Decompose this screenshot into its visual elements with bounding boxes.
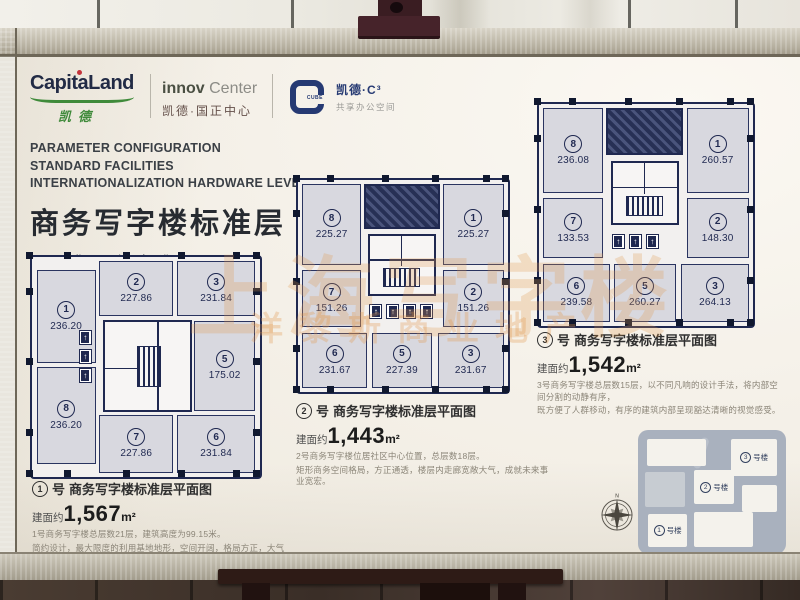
column-marker — [123, 470, 130, 477]
cube-c-icon: CUBE — [290, 80, 324, 114]
hatched-block — [606, 108, 683, 155]
column-marker — [747, 98, 754, 105]
column-marker — [432, 386, 439, 393]
column-marker — [747, 135, 754, 142]
column-marker — [534, 206, 541, 213]
frame-left — [0, 28, 17, 578]
compass-icon: N — [594, 492, 640, 538]
sitemap-building-1: 1号楼 — [648, 514, 686, 546]
column-marker — [432, 175, 439, 182]
plan2-unit-6: 6231.67 — [302, 333, 367, 388]
floor-plan-3: 8236.08 1260.57 7133.53 2148.30 6239.58 … — [537, 102, 755, 328]
plan2-unit-8: 8225.27 — [302, 184, 361, 265]
cube-chinese: 凯德·C³ — [336, 81, 396, 98]
column-marker — [502, 386, 509, 393]
plan3-unit-2: 2148.30 — [687, 198, 749, 258]
plan2-caption: 2 号 商务写字楼标准层平面图 建面约1,443m² 2号商务写字楼位居社区中心… — [296, 401, 556, 488]
plan3-unit-7: 7133.53 — [543, 198, 603, 258]
plan3-unit-1: 1260.57 — [687, 108, 749, 192]
plan3-unit-6: 6239.58 — [543, 264, 609, 322]
easel-clamp-bar — [358, 16, 440, 39]
elevator-icon — [79, 349, 92, 364]
column-marker — [483, 386, 490, 393]
column-marker — [625, 319, 632, 326]
elevator-icon — [612, 234, 625, 249]
column-marker — [502, 278, 509, 285]
column-marker — [502, 175, 509, 182]
column-marker — [502, 210, 509, 217]
floor-plan-2: 8225.27 1225.27 7151.26 2151.26 6231.67 … — [296, 178, 510, 394]
plan2-desc-2: 矩形商务空间格局，方正通透，楼层内走廊宽敞大气，成就未来事业宽宏。 — [296, 465, 556, 488]
elevator-bank — [612, 234, 659, 249]
column-marker — [534, 277, 541, 284]
easel-tray — [218, 569, 563, 584]
column-marker — [253, 429, 260, 436]
column-marker — [676, 98, 683, 105]
plan3-desc-2: 既方便了人群移动，有序的建筑内部呈现豁达清晰的视觉感受。 — [537, 405, 785, 417]
cube-word: CUBE — [307, 95, 323, 101]
heading-en-3: INTERNATIONALIZATION HARDWARE LEVEL — [30, 175, 308, 193]
column-marker — [253, 252, 260, 259]
sitemap-building — [694, 512, 753, 547]
cube-subtitle: 共享办公空间 — [336, 101, 396, 113]
heading-en-1: PARAMETER CONFIGURATION — [30, 140, 308, 158]
plan3-unit-5: 5260.27 — [614, 264, 676, 322]
center-wordmark: Center — [205, 80, 257, 97]
column-marker — [534, 319, 541, 326]
sitemap-block — [645, 472, 685, 507]
elevator-icon — [420, 304, 433, 319]
plan3-caption: 3 号 商务写字楼标准层平面图 建面约1,542m² 3号商务写字楼总层数15层… — [537, 330, 785, 417]
floor-plan-1: 1236.20 2227.86 3231.84 5175.02 6231.84 … — [30, 255, 262, 479]
capitaland-chinese: 凯德 — [58, 106, 142, 125]
plan1-area: 建面约1,567m² — [32, 501, 292, 527]
column-marker — [534, 98, 541, 105]
column-marker — [382, 175, 389, 182]
column-marker — [382, 386, 389, 393]
sitemap-building-2: 2号楼 — [694, 470, 734, 505]
stairs-icon — [383, 268, 420, 287]
plan1-caption-title: 1 号 商务写字楼标准层平面图 — [32, 479, 292, 498]
plan3-unit-8: 8236.08 — [543, 108, 603, 192]
elevator-bank — [369, 304, 433, 319]
column-marker — [676, 319, 683, 326]
plan1-unit-2: 2227.86 — [99, 261, 173, 316]
column-marker — [534, 135, 541, 142]
capitaland-logo: CapitaLand 凯德 — [30, 72, 142, 125]
column-marker — [178, 252, 185, 259]
plan2-unit-1: 1225.27 — [443, 184, 504, 265]
plan3-caption-title: 3 号 商务写字楼标准层平面图 — [537, 330, 785, 349]
logo-divider — [150, 74, 151, 118]
column-marker — [293, 210, 300, 217]
service-core — [368, 234, 435, 295]
column-marker — [747, 319, 754, 326]
plan1-desc-1: 1号商务写字楼总层数21层，建筑高度为99.15米。 — [32, 529, 292, 541]
elevator-bank — [79, 330, 92, 383]
plan3-area: 建面约1,542m² — [537, 352, 785, 378]
heading-block: PARAMETER CONFIGURATION STANDARD FACILIT… — [30, 140, 308, 269]
photo-of-sign-board: CapitaLand 凯德 innov Center 凯德·国正中心 CUBE … — [0, 0, 800, 600]
elevator-icon — [79, 330, 92, 345]
service-core — [103, 320, 192, 412]
cube-logo: CUBE 凯德·C³ 共享办公空间 — [290, 80, 396, 114]
column-marker — [747, 206, 754, 213]
column-marker — [253, 288, 260, 295]
innov-chinese: 凯德·国正中心 — [162, 102, 257, 119]
page-title: 商务写字楼标准层 — [30, 200, 308, 242]
plan2-unit-5: 5227.39 — [372, 333, 433, 388]
column-marker — [26, 429, 33, 436]
sitemap-building-3: 3号楼 — [731, 439, 777, 476]
plan1-unit-6: 6231.84 — [177, 415, 256, 472]
plan3-unit-3: 3264.13 — [681, 264, 748, 322]
logo-divider — [272, 74, 273, 118]
svg-text:N: N — [615, 494, 619, 500]
column-marker — [123, 252, 130, 259]
column-marker — [625, 98, 632, 105]
innov-center-logo: innov Center 凯德·国正中心 — [162, 80, 257, 119]
column-marker — [26, 252, 33, 259]
capitaland-red-dot-icon — [77, 70, 82, 75]
innov-wordmark: innov — [162, 80, 205, 97]
column-marker — [569, 98, 576, 105]
column-marker — [233, 470, 240, 477]
easel-leg — [420, 583, 490, 600]
stairs-icon — [626, 196, 663, 216]
heading-en-2: STANDARD FACILITIES — [30, 158, 308, 176]
plan2-unit-2: 2151.26 — [443, 270, 504, 327]
sitemap-building — [742, 485, 778, 512]
easel-leg — [242, 583, 270, 600]
column-marker — [233, 252, 240, 259]
column-marker — [253, 358, 260, 365]
plan1-unit-5: 5175.02 — [194, 321, 256, 411]
elevator-icon — [386, 304, 399, 319]
column-marker — [293, 386, 300, 393]
column-marker — [483, 175, 490, 182]
capitaland-wordmark: CapitaLand — [30, 72, 142, 95]
easel-leg — [498, 583, 526, 600]
column-marker — [293, 175, 300, 182]
elevator-icon — [79, 368, 92, 383]
plan3-desc-1: 3号商务写字楼总层数15层，以不同凡响的设计手法，将内部空间分割的动静有序， — [537, 380, 785, 403]
elevator-icon — [629, 234, 642, 249]
column-marker — [26, 470, 33, 477]
sitemap-building — [647, 439, 706, 466]
column-marker — [747, 277, 754, 284]
plan1-unit-7: 7227.86 — [99, 415, 173, 472]
column-marker — [253, 470, 260, 477]
hatched-block — [364, 184, 440, 229]
easel-clamp-knob — [390, 2, 403, 13]
column-marker — [26, 288, 33, 295]
column-marker — [26, 358, 33, 365]
plan2-area: 建面约1,443m² — [296, 423, 556, 449]
column-marker — [178, 470, 185, 477]
plan2-caption-title: 2 号 商务写字楼标准层平面图 — [296, 401, 556, 420]
column-marker — [569, 319, 576, 326]
column-marker — [64, 470, 71, 477]
column-marker — [727, 319, 734, 326]
plan2-unit-3: 3231.67 — [438, 333, 504, 388]
service-core — [611, 161, 679, 225]
plan2-desc-1: 2号商务写字楼位居社区中心位置，总层数18层。 — [296, 451, 556, 463]
column-marker — [293, 278, 300, 285]
elevator-icon — [646, 234, 659, 249]
column-marker — [293, 345, 300, 352]
elevator-icon — [403, 304, 416, 319]
column-marker — [327, 175, 334, 182]
plan2-unit-7: 7151.26 — [302, 270, 361, 327]
plan1-unit-3: 3231.84 — [177, 261, 256, 316]
column-marker — [64, 252, 71, 259]
column-marker — [327, 386, 334, 393]
column-marker — [727, 98, 734, 105]
elevator-icon — [369, 304, 382, 319]
column-marker — [502, 345, 509, 352]
site-map: 3号楼 2号楼 1号楼 — [638, 430, 786, 554]
